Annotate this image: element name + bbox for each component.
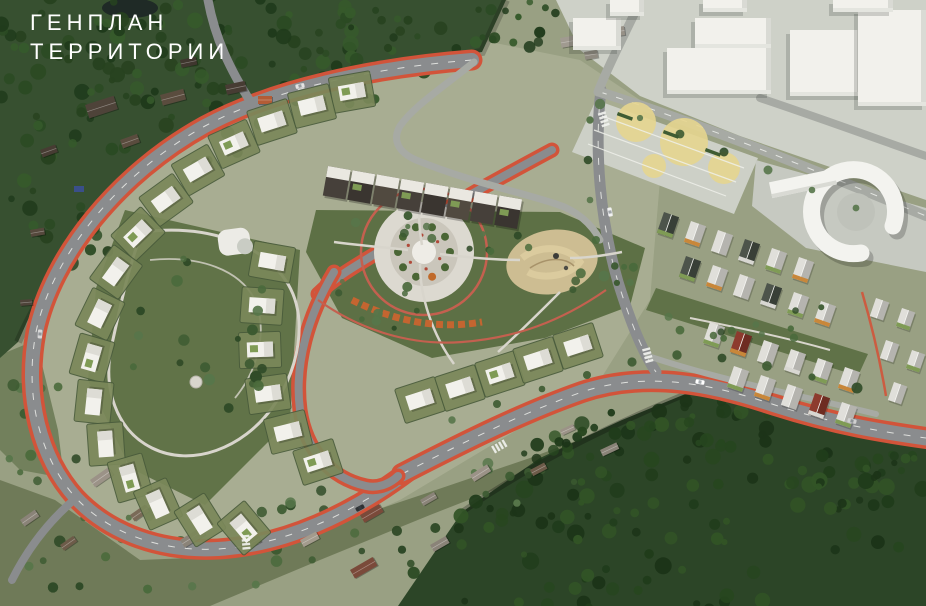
tree (405, 224, 410, 229)
street-tree (676, 130, 685, 139)
tree (340, 279, 345, 284)
tree (423, 223, 430, 230)
tree (611, 262, 619, 270)
tree (613, 507, 620, 514)
plaza-tree (428, 273, 436, 281)
tree (123, 93, 130, 100)
plaza-flower (436, 240, 439, 243)
masterplan-render: ГЕНПЛАН ТЕРРИТОРИИ (0, 0, 926, 606)
tree (873, 454, 884, 465)
tree (700, 433, 714, 447)
tree (309, 556, 316, 563)
tree (831, 545, 840, 554)
tree (763, 454, 774, 465)
tree (576, 268, 586, 278)
tree (299, 47, 312, 60)
pool (74, 186, 84, 192)
tree (19, 43, 30, 54)
tree (316, 47, 324, 55)
tree (578, 500, 584, 506)
tree (621, 264, 627, 270)
tree (786, 476, 799, 489)
tree (395, 26, 405, 36)
tree (427, 234, 436, 243)
tree (723, 518, 730, 525)
tree (486, 505, 493, 512)
tree (882, 495, 895, 508)
tree (44, 219, 55, 230)
tree (482, 491, 489, 498)
tree (398, 546, 406, 554)
tree (348, 24, 354, 30)
tree (725, 441, 737, 453)
tree (177, 359, 184, 366)
block-facade (833, 8, 893, 12)
tree (569, 582, 582, 595)
tree (818, 304, 824, 310)
tree (824, 502, 837, 515)
tree (316, 55, 331, 70)
street-tree (672, 350, 681, 359)
tree (509, 39, 517, 47)
cottage-lot (248, 241, 296, 284)
tree (129, 94, 141, 106)
tree (606, 582, 619, 595)
street-tree (808, 373, 815, 380)
tree (404, 211, 413, 220)
tree (180, 256, 186, 262)
tree (680, 403, 689, 412)
tree (496, 508, 509, 521)
tree (644, 549, 654, 559)
tree (524, 41, 536, 53)
tree (8, 379, 20, 391)
tree (407, 560, 415, 568)
tree (893, 542, 904, 553)
tree (87, 88, 95, 96)
plaza-flower (438, 257, 441, 260)
tree (614, 280, 620, 286)
block-roof (573, 18, 621, 50)
tree (868, 499, 880, 511)
street-tree (762, 361, 772, 371)
tree (521, 450, 527, 456)
tree (716, 409, 724, 417)
street-tree (595, 99, 605, 109)
tree (548, 512, 556, 520)
cottage-lot (328, 71, 376, 114)
tree (871, 535, 885, 549)
tree (648, 497, 660, 509)
street-tree (720, 148, 729, 157)
tree (257, 364, 267, 374)
tree (590, 424, 598, 432)
plaza-tree (441, 233, 449, 241)
street-tree (627, 357, 636, 366)
tree (655, 557, 672, 574)
tree (759, 331, 765, 337)
block-facade (703, 8, 747, 12)
tree (430, 523, 440, 533)
tree (30, 64, 46, 80)
tree (17, 173, 31, 187)
tree (414, 308, 420, 314)
tree (253, 306, 263, 316)
street-tree (539, 386, 546, 393)
tree (271, 555, 283, 567)
cottage-wing (264, 342, 274, 357)
tree (627, 279, 634, 286)
tree (132, 69, 142, 79)
tree (651, 404, 667, 420)
tree (456, 539, 466, 549)
plan-title: ГЕНПЛАН ТЕРРИТОРИИ (30, 8, 229, 66)
tree (567, 489, 579, 501)
tree (171, 275, 183, 287)
tree (372, 7, 379, 14)
block-roof (790, 30, 862, 96)
tree (188, 582, 196, 590)
tree (377, 16, 386, 25)
tree (534, 27, 545, 38)
tree (573, 535, 582, 544)
tree (200, 362, 210, 372)
tree (747, 566, 760, 579)
tree (469, 495, 483, 509)
plaza-flower (409, 261, 412, 264)
street-tree (586, 116, 593, 123)
tree (792, 307, 799, 314)
tree (15, 31, 26, 42)
tree (224, 403, 234, 413)
tree (676, 326, 685, 335)
street-tree (493, 400, 501, 408)
tree (595, 466, 607, 478)
tree (202, 99, 211, 108)
tree (359, 548, 366, 555)
tree (515, 14, 522, 21)
tree (130, 81, 144, 95)
cottage-wing (86, 388, 102, 399)
tree (626, 421, 635, 430)
tree (454, 508, 469, 523)
block-facade (695, 44, 771, 48)
block-side (766, 48, 771, 94)
tree (85, 244, 96, 255)
tree (911, 455, 918, 462)
block-facade (858, 102, 926, 106)
tree (544, 582, 555, 593)
tree (394, 15, 401, 22)
tree (18, 81, 32, 95)
tree (505, 472, 514, 481)
tree (54, 383, 63, 392)
tree (384, 44, 392, 52)
tree (542, 4, 549, 11)
tree (4, 73, 15, 84)
masterplan-scene (0, 0, 926, 606)
parking-circle (616, 102, 656, 142)
tree (483, 522, 494, 533)
tree (207, 82, 220, 95)
tree (194, 69, 209, 84)
car-glass (698, 380, 702, 384)
tree (95, 84, 104, 93)
block-side (766, 18, 771, 48)
tree (898, 467, 905, 474)
school-courtyard (837, 193, 875, 231)
tree (514, 232, 522, 240)
tree (838, 499, 847, 508)
tree (76, 202, 85, 211)
tree (530, 438, 544, 452)
block-facade (573, 46, 621, 50)
tree (521, 551, 527, 557)
tree (534, 37, 543, 46)
play-equipment (553, 253, 559, 259)
tree (253, 380, 264, 391)
tree (581, 569, 594, 582)
tree (644, 452, 660, 468)
tree (404, 16, 413, 25)
tree (343, 36, 359, 52)
tree (258, 285, 266, 293)
car-glass (38, 332, 41, 335)
tree (252, 581, 260, 589)
cottage-wing (266, 298, 276, 314)
tree (790, 497, 805, 512)
plan-title-line1: ГЕНПЛАН (30, 8, 229, 37)
tree (747, 473, 758, 484)
tree (315, 29, 323, 37)
plaza-center-pavilion (412, 240, 436, 264)
tree (277, 16, 292, 31)
city-block-building (829, 0, 893, 16)
tree (510, 510, 517, 517)
tree (392, 326, 397, 331)
block-side (921, 10, 926, 106)
tree (630, 509, 639, 518)
city-block-building (606, 0, 644, 20)
tree (301, 66, 308, 73)
tree (147, 96, 155, 104)
tree (143, 585, 152, 594)
gazebo (190, 376, 202, 388)
tree (408, 567, 420, 579)
tree (715, 441, 726, 452)
street-tree (718, 354, 727, 363)
tree (33, 113, 40, 120)
tree (571, 479, 577, 485)
tree (632, 528, 641, 537)
tree (76, 107, 86, 117)
tree (76, 582, 84, 590)
tree (277, 504, 287, 514)
car (37, 329, 42, 338)
village-house (20, 299, 34, 307)
tree (502, 7, 509, 14)
tree (560, 510, 575, 525)
tree (178, 334, 189, 345)
tree (759, 435, 771, 447)
tree (856, 497, 863, 504)
block-roof (858, 10, 926, 106)
tree (608, 409, 616, 417)
tree (678, 566, 686, 574)
tree (863, 465, 871, 473)
city-block-building (663, 48, 771, 98)
tree (901, 454, 911, 464)
tree (578, 427, 588, 437)
tree (235, 56, 248, 69)
tree (204, 374, 215, 385)
tree (695, 440, 701, 446)
tree (235, 336, 241, 342)
tree (136, 307, 145, 316)
tree (790, 334, 798, 342)
tree (486, 4, 497, 15)
tree (798, 466, 807, 475)
tree (578, 478, 586, 486)
tree (487, 248, 494, 255)
cottage-lot (74, 379, 114, 425)
tree (20, 134, 34, 148)
tree (351, 218, 361, 228)
street-tree (852, 383, 863, 394)
tree (134, 331, 143, 340)
tree (345, 7, 356, 18)
tree (654, 417, 669, 432)
tree (710, 332, 717, 339)
tree (728, 327, 736, 335)
tree (586, 453, 594, 461)
tree (687, 479, 700, 492)
tree (548, 445, 559, 456)
tree (645, 469, 658, 482)
tree (609, 518, 617, 526)
tree (159, 118, 174, 133)
tree (350, 528, 359, 537)
tree (17, 469, 23, 475)
tree (72, 454, 81, 463)
tree (467, 246, 473, 252)
tree (592, 576, 605, 589)
block-facade (790, 92, 862, 96)
tree (551, 9, 560, 18)
tree (609, 427, 622, 440)
city-block-building (699, 0, 747, 16)
tree (816, 449, 829, 462)
tree (711, 532, 724, 545)
tree (602, 565, 610, 573)
tree (335, 289, 342, 296)
tree (610, 483, 625, 498)
tree (336, 19, 346, 29)
tree (316, 486, 326, 496)
tree (33, 121, 43, 131)
green-roof (341, 87, 350, 95)
city-block-building (854, 10, 926, 110)
street-tree (448, 416, 455, 423)
tree (25, 450, 36, 461)
tree (130, 363, 137, 370)
tree (525, 244, 532, 251)
plaza-tree (399, 263, 407, 271)
tree (891, 460, 897, 466)
tree (257, 507, 267, 517)
block-roof (667, 48, 771, 94)
tree (402, 282, 412, 292)
tree (22, 201, 37, 216)
tree (788, 325, 794, 331)
plaza-tree (441, 263, 449, 271)
tree (689, 499, 699, 509)
tree (532, 454, 542, 464)
tree (753, 321, 760, 328)
car-glass (608, 210, 612, 214)
street-tree (583, 371, 591, 379)
city-block-building (786, 30, 862, 100)
tree (684, 417, 694, 427)
tree (106, 143, 119, 156)
tree (513, 499, 520, 506)
tree (392, 526, 402, 536)
city-block-building (569, 18, 621, 54)
tree (389, 33, 397, 41)
tree (372, 316, 381, 325)
tree (475, 7, 481, 13)
play-equipment (564, 266, 568, 270)
tree (414, 33, 420, 39)
tree (536, 517, 549, 530)
tree (644, 421, 656, 433)
tree (629, 263, 638, 272)
tree (873, 471, 881, 479)
plaza-flower (407, 244, 410, 247)
tree (709, 519, 720, 530)
tree (454, 523, 464, 533)
plaza-tree (412, 273, 420, 281)
tree (40, 557, 47, 564)
tree (110, 67, 125, 82)
tree (276, 29, 292, 45)
tree (878, 478, 895, 495)
tree (266, 3, 277, 14)
tree (890, 451, 899, 460)
tree (30, 188, 37, 195)
street-tree (592, 236, 600, 244)
green-roof (250, 345, 258, 352)
tree (285, 497, 296, 508)
tree (400, 229, 409, 238)
street-tree (853, 205, 860, 212)
tree (11, 43, 19, 51)
tree (8, 196, 15, 203)
tree (720, 335, 727, 342)
tree (717, 328, 724, 335)
plan-title-line2: ТЕРРИТОРИИ (30, 37, 229, 66)
street-tree (584, 156, 593, 165)
tree (683, 456, 691, 464)
tree (665, 313, 673, 321)
tree (359, 316, 365, 322)
block-roof (695, 18, 771, 48)
tree (6, 455, 13, 462)
tree (489, 32, 500, 43)
block-facade (667, 90, 771, 94)
tree (562, 439, 571, 448)
street-tree (764, 166, 773, 175)
